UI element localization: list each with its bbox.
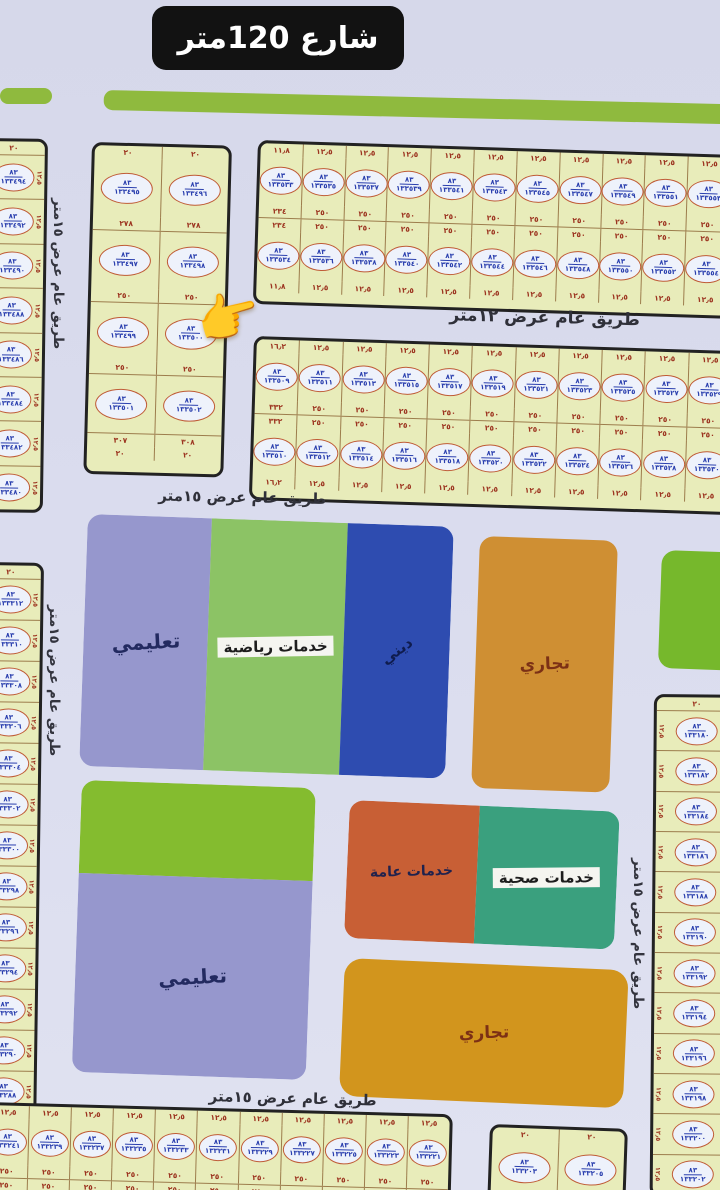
plot-number-label: ٨٣١٣٣١٨٠ bbox=[676, 717, 718, 745]
plot-cell: ٨٣١٣٣٥١٦ bbox=[382, 431, 427, 480]
plot-number-label: ٨٣١٣٣٥٥٠ bbox=[599, 252, 642, 281]
plot-cell: ٨٣١٣٣٥٤١ bbox=[430, 161, 474, 210]
plot-number-label: ٨٣١٣٣٥١٩ bbox=[472, 369, 515, 398]
plot-cell: ٨٣١٣٣١٨٠١٢٫٥ bbox=[656, 711, 720, 752]
dimension-label: ١٢٫٥ bbox=[25, 1044, 33, 1058]
plot-number-label: ٨٣١٣٣٥٤٠ bbox=[385, 245, 428, 274]
dimension-label: ١٦٫٢ bbox=[252, 475, 296, 489]
road-label-15m-vertical-left-top: طريق عام عرض ١٥متر bbox=[50, 198, 66, 349]
zone-religious-label: ديني bbox=[377, 633, 416, 668]
dimension-label: ١٢٫٥ bbox=[386, 343, 430, 357]
plot-number-label: ٨٣١٣٣٢٩٤ bbox=[0, 954, 27, 983]
dimension-label: ١٢٫٥ bbox=[657, 844, 665, 858]
plot-number-label: ٨٣١٣٣١٨٨ bbox=[674, 878, 716, 906]
dimension-label: ١٢٫٥ bbox=[427, 284, 470, 298]
block-number: ٨٣ bbox=[3, 257, 22, 266]
plot-number-label: ٨٣١٣٣٤٨٨ bbox=[0, 296, 33, 325]
plot-number-label: ٨٣١٣٣١٩٠ bbox=[674, 918, 716, 946]
dimension-label: ١٢٫٥ bbox=[240, 1112, 282, 1126]
plot-number: ١٣٣٥٢٢ bbox=[521, 460, 547, 469]
plot-number-label: ٨٣١٣٣١٨٤ bbox=[675, 798, 717, 826]
plot-number: ١٣٣٢٩٦ bbox=[0, 928, 19, 937]
block-number: ٨٣ bbox=[183, 253, 202, 263]
plot-number-label: ٨٣١٣٣٥١٣ bbox=[342, 365, 385, 394]
dimension-label: ٢٥٠ bbox=[686, 232, 720, 246]
plot-number-label: ٨٣١٣٣٥٥١ bbox=[644, 178, 687, 207]
plot-number: ١٣٣٥٥٤ bbox=[693, 269, 719, 278]
plot-cell: ٨٣١٣٣٥٢٠ bbox=[469, 434, 514, 483]
dimension-label: ١٢٫٥ bbox=[31, 593, 39, 607]
plot-number-label: ٨٣١٣٣٣١٠ bbox=[0, 626, 31, 655]
dimension-label: ٢٥٠ bbox=[643, 230, 686, 244]
plot-cell: ٨٣١٣٣٢٢٩ bbox=[239, 1125, 282, 1172]
plot-number: ١٣٣٢٣٧ bbox=[79, 1144, 105, 1153]
block-number: ٨٣ bbox=[684, 1085, 703, 1094]
plot-number: ١٣٣٢٩٤ bbox=[0, 969, 18, 978]
dimension-label: ١٢٫٥ bbox=[513, 287, 556, 301]
zone-sports-services-label: خدمات رياضية bbox=[217, 636, 334, 658]
plot-number: ١٣٣١٩٤ bbox=[681, 1014, 707, 1023]
dimension-label: ١٢٫٥ bbox=[555, 485, 599, 499]
dimension-label: ١٢٫٥ bbox=[602, 350, 646, 364]
zone-educational-lower: تعليمي bbox=[72, 780, 316, 1080]
subdivision-map: شارع 120متر ٢٠٨٣١٣٣٤٩٤١٢٫٥٨٣١٣٣٤٩٢١٢٫٥٨٣… bbox=[0, 0, 720, 1190]
plot-number: ١٣٣٤٨٢ bbox=[0, 444, 23, 453]
dimension-label: ٢٥٠ bbox=[196, 1184, 238, 1190]
dimension-label: ١٢٫٥ bbox=[26, 962, 34, 976]
dimension-label: ١١٫٨ bbox=[260, 143, 303, 157]
dimension-label: ١٢٫٥ bbox=[34, 259, 42, 273]
plot-cell: ٨٣١٣٣٣٠٠١٢٫٥ bbox=[0, 825, 37, 867]
plot-number-label: ٨٣١٣٣٣٠٠ bbox=[0, 831, 28, 860]
plot-number-label: ٨٣١٣٣٢٢٧ bbox=[283, 1135, 322, 1163]
dimension-label: ٢٥٠ bbox=[341, 403, 385, 417]
dimension-label: ١٢٫٥ bbox=[31, 481, 39, 495]
plot-cell: ٨٣١٣٣٥٥٤ bbox=[685, 244, 720, 293]
plot-number-label: ٨٣١٣٣٥١٥ bbox=[385, 366, 428, 395]
plot-number: ١٣٣٥٢٣ bbox=[566, 386, 592, 395]
block-number: ٨٣ bbox=[4, 168, 23, 177]
dimension-label: ١٢٫٥ bbox=[28, 839, 36, 853]
plot-number: ١٣٣٥٢٧ bbox=[653, 389, 679, 398]
plot-cell: ٨٣١٣٣٥٣٥ bbox=[302, 157, 346, 206]
road-label-15m-vertical-left-bottom: طريق عام عرض ١٥متر bbox=[46, 605, 62, 756]
zone-public-health-services: خدمات عامة خدمات صحية bbox=[344, 800, 620, 950]
plot-number-label: ٨٣١٣٣٢٩٦ bbox=[0, 913, 27, 942]
plot-number-label: ٨٣١٣٣٤٩٧ bbox=[99, 244, 152, 276]
dimension-label: ١٢٫٥ bbox=[598, 486, 642, 500]
plot-cell: ٨٣١٣٣٤٩٨ bbox=[159, 232, 227, 292]
plot-number-label: ٨٣١٣٣٥٢٩ bbox=[688, 376, 720, 405]
dimension-label: ٢٥٠ bbox=[557, 410, 601, 424]
plot-cell: ٨٣١٣٣٢٩٤١٢٫٥ bbox=[0, 948, 36, 990]
plot-number-label: ٨٣١٣٣٥٤٢ bbox=[428, 246, 471, 275]
plot-cell: ٨٣١٣٣٢٠٠١٢٫٥ bbox=[653, 1114, 720, 1155]
dimension-label: ١٢٫٥ bbox=[432, 148, 475, 162]
dimension-label: ١٢٫٥ bbox=[282, 1113, 324, 1127]
plot-number: ١٣٣٥١٠ bbox=[261, 452, 287, 461]
plot-number-label: ٨٣١٣٣٥٣٤ bbox=[257, 241, 300, 270]
plot-number: ١٣٣٥٤٤ bbox=[479, 262, 505, 271]
dimension-label: ١٢٫٥ bbox=[474, 150, 517, 164]
dimension-label: ١٢٫٥ bbox=[303, 144, 346, 158]
plot-cell: ٨٣١٣٣٥٣٣ bbox=[259, 156, 303, 205]
plot-number-label: ٨٣١٣٣٥٤٩ bbox=[602, 177, 645, 206]
dimension-label: ٢٥٠ bbox=[430, 209, 473, 223]
block-number: ٨٣ bbox=[0, 673, 19, 682]
dimension-label: ١٢٫٥ bbox=[654, 1127, 662, 1141]
plot-number: ١٣٣٣٠٠ bbox=[0, 846, 20, 855]
plot-row: ٨٣١٣٣٢٠٣٨٣١٣٣٢٠٥ bbox=[491, 1140, 625, 1190]
dimension-label: ٢٣٤ bbox=[259, 204, 302, 218]
dimension-label: ١٢٫٥ bbox=[655, 1046, 663, 1060]
plot-number: ١٣٣٥٤٣ bbox=[481, 187, 507, 196]
plot-cell: ٨٣١٣٣٥١٥ bbox=[385, 356, 430, 405]
plot-cell: ٨٣١٣٣٢٢٣ bbox=[365, 1128, 408, 1175]
plot-number: ١٣٣٤٨٨ bbox=[0, 310, 24, 319]
dimension-label: ١٢٫٥ bbox=[343, 342, 387, 356]
dimension-label: ٢٥٠ bbox=[470, 421, 514, 435]
plot-number-label: ٨٣١٣٣١٩٦ bbox=[673, 1039, 715, 1067]
dimension-label: ١٢٫٥ bbox=[29, 798, 37, 812]
plot-cell: ٨٣١٣٣٥١٩ bbox=[471, 359, 516, 408]
plot-number: ١٣٣٥١٢ bbox=[305, 453, 331, 462]
dimension-label: ١٢٫٥ bbox=[656, 965, 664, 979]
dimension-label: ١٢٫٥ bbox=[657, 764, 665, 778]
dimension-label: ١٢٫٥ bbox=[27, 880, 35, 894]
plot-number-label: ٨٣١٣٣٢٣٧ bbox=[72, 1130, 111, 1158]
plot-number: ١٣٣٥٣٤ bbox=[265, 256, 291, 265]
dimension-label: ١٢٫٥ bbox=[408, 1116, 449, 1130]
plot-number: ١٣٣٥١١ bbox=[307, 378, 333, 387]
dimension-label: ٢٥٠ bbox=[387, 222, 430, 236]
plot-number: ١٣٣٥٠٢ bbox=[176, 406, 202, 415]
plot-number-label: ٨٣١٣٣٤٩٩ bbox=[97, 316, 150, 348]
plot-number: ١٣٣٥١٤ bbox=[348, 454, 374, 463]
plot-cell: ٨٣١٣٣٢٣٧ bbox=[71, 1120, 114, 1167]
dimension-label: ٢٥٠ bbox=[70, 1180, 112, 1190]
dimension-label: ١٢٫٥ bbox=[382, 479, 426, 493]
dimension-label: ١٢٫٥ bbox=[684, 292, 720, 306]
dimension-label: ٢٥٠ bbox=[644, 412, 688, 426]
plot-cell: ٨٣١٣٣٤٩٢١٢٫٥ bbox=[0, 199, 44, 244]
dimension-label: ٢٥٠ bbox=[428, 405, 472, 419]
plot-number-label: ٨٣١٣٣٥٠١ bbox=[95, 388, 148, 420]
block-number: ٨٣ bbox=[0, 960, 15, 969]
plot-cell: ٨٣١٣٣٥٢٥ bbox=[601, 363, 646, 412]
plot-cell: ٨٣١٣٣٢٣٥ bbox=[113, 1121, 156, 1168]
plot-cell: ٨٣١٣٣١٨٤١٢٫٥ bbox=[656, 792, 720, 833]
plot-number-label: ٨٣١٣٣١٩٤ bbox=[673, 999, 715, 1027]
plot-number: ١٣٣٥١٨ bbox=[434, 457, 460, 466]
plot-cell: ٨٣١٣٣٤٨٦١٢٫٥ bbox=[0, 333, 42, 378]
plot-number: ١٣٣٥١٣ bbox=[350, 379, 376, 388]
plot-number: ١٣٣٥٢٩ bbox=[696, 390, 720, 399]
dimension-label: ١٢٫٥ bbox=[114, 1108, 156, 1122]
dimension-label: ١٢٫٥ bbox=[346, 146, 389, 160]
dimension-label: ١٢٫٥ bbox=[468, 482, 512, 496]
plot-block-north-lower: ١٦٫٢١٢٫٥١٢٫٥١٢٫٥١٢٫٥١٢٫٥١٢٫٥١٢٫٥١٢٫٥١٢٫٥… bbox=[249, 336, 720, 515]
dimension-label: ٢٥٠ bbox=[515, 212, 558, 226]
dimension-label: ١٢٫٥ bbox=[641, 291, 684, 305]
dimension-label: ١٢٫٥ bbox=[603, 154, 646, 168]
plot-cell: ٨٣١٣٣٢٠٢١٢٫٥ bbox=[653, 1155, 720, 1190]
block-number: ٨٣ bbox=[118, 179, 137, 189]
plot-cell: ٨٣١٣٣٥١٢ bbox=[296, 428, 341, 477]
block-number: ٨٣ bbox=[40, 1134, 59, 1144]
dimension-label: ٢٣٤ bbox=[258, 218, 301, 232]
block-number: ٨٣ bbox=[685, 964, 704, 973]
plot-number: ١٣٣٤٩٦ bbox=[181, 190, 207, 199]
plot-number-label: ٨٣١٣٣٥٣٧ bbox=[345, 169, 388, 198]
block-number: ٨٣ bbox=[1, 390, 20, 399]
dimension-label: ٢٠ bbox=[0, 565, 41, 580]
plot-number-label: ٨٣١٣٣٥١٠ bbox=[253, 437, 296, 466]
dimension-label: ٢٠ bbox=[87, 446, 155, 461]
plot-number: ١٣٣٥٠١ bbox=[108, 404, 134, 413]
dimension-label: ٢٥٠ bbox=[344, 221, 387, 235]
dimension-label: ٢٥٠ bbox=[0, 1178, 28, 1190]
plot-number-label: ٨٣١٣٣٢٣٩ bbox=[30, 1129, 69, 1157]
road-label-15m-vertical-right: طريق عام عرض ١٥متر bbox=[630, 858, 646, 1009]
plot-number-label: ٨٣١٣٣١٩٨ bbox=[672, 1080, 714, 1108]
block-number: ٨٣ bbox=[116, 251, 135, 261]
zone-health-services: خدمات صحية bbox=[473, 806, 619, 950]
dimension-label: ٢٥٠ bbox=[112, 1181, 154, 1190]
plot-cell: ٨٣١٣٣٢٩٨١٢٫٥ bbox=[0, 866, 37, 908]
zone-sports-services: خدمات رياضية bbox=[204, 518, 348, 775]
block-number: ٨٣ bbox=[0, 919, 15, 928]
block-number: ٨٣ bbox=[0, 878, 16, 887]
plot-number-label: ٨٣١٣٣٢٢٩ bbox=[241, 1134, 280, 1162]
plot-number: ١٣٣٢٣٥ bbox=[121, 1145, 147, 1154]
plot-cell: ٨٣١٣٣٥٤٣ bbox=[473, 163, 517, 212]
plot-cell: ٨٣١٣٣٤٩٥ bbox=[93, 158, 162, 218]
block-number: ٨٣ bbox=[2, 301, 21, 310]
dimension-label: ١٢٫٥ bbox=[641, 487, 685, 501]
dimension-label: ١٢٫٥ bbox=[658, 724, 666, 738]
plot-cell: ٨٣١٣٣٣٠٢١٢٫٥ bbox=[0, 784, 38, 826]
dimension-label: ١٢٫٥ bbox=[560, 153, 603, 167]
dimension-label: ١٢٫٥ bbox=[389, 147, 432, 161]
plot-number: ١٣٣٣٠٨ bbox=[0, 682, 22, 691]
plot-cell: ٨٣١٣٣٥٤٧ bbox=[559, 165, 603, 214]
dimension-label: ٢٥٠ bbox=[28, 1165, 70, 1179]
plot-cell: ٨٣١٣٣٥٢١ bbox=[514, 360, 559, 409]
zone-educational-1: تعليمي bbox=[79, 514, 212, 770]
plot-cell: ٨٣١٣٣٢٢١ bbox=[407, 1129, 449, 1176]
plot-number-label: ٨٣١٣٣١٨٦ bbox=[675, 838, 717, 866]
plot-cell: ٨٣١٣٣٥٤٤ bbox=[471, 238, 515, 287]
plot-cell: ٨٣١٣٣٤٨٤١٢٫٥ bbox=[0, 377, 42, 422]
plot-cell: ٨٣١٣٣٥٥٢ bbox=[642, 243, 686, 292]
plot-cell: ٨٣١٣٣٢٣١ bbox=[197, 1124, 240, 1171]
block-number: ٨٣ bbox=[2, 346, 21, 355]
plot-number: ١٣٣١٨٨ bbox=[682, 893, 708, 902]
plot-number: ١٣٣٥٥١ bbox=[653, 193, 679, 202]
zone-educational-sports-religious: تعليمي خدمات رياضية ديني bbox=[79, 514, 454, 779]
dimension-label: ٢٥٠ bbox=[644, 216, 687, 230]
plot-number-label: ٨٣١٣٣٢٩٢ bbox=[0, 995, 26, 1024]
block-number: ٨٣ bbox=[0, 1083, 13, 1092]
block-number: ٨٣ bbox=[0, 1133, 17, 1143]
dimension-label: ١٢٫٥ bbox=[300, 340, 344, 354]
plot-number-label: ٨٣١٣٣٢٩٠ bbox=[0, 1036, 25, 1065]
dimension-label: ٢٥٠ bbox=[112, 1167, 154, 1181]
plot-cell: ٨٣١٣٣٢٩٢١٢٫٥ bbox=[0, 989, 35, 1031]
block-number: ٨٣ bbox=[335, 1141, 354, 1151]
zone-public-services-label: خدمات عامة bbox=[370, 863, 453, 881]
plot-cell: ٨٣١٣٣٥٠٩ bbox=[255, 352, 300, 401]
plot-cell: ٨٣١٣٣٥٢٢ bbox=[512, 435, 557, 484]
plot-number-label: ٨٣١٣٣٢٢٥ bbox=[325, 1136, 364, 1164]
plot-number-label: ٨٣١٣٣٤٩٤ bbox=[0, 163, 35, 192]
block-number: ٨٣ bbox=[684, 1125, 703, 1134]
plot-number-label: ٨٣١٣٣٢٠٥ bbox=[564, 1153, 617, 1186]
plot-cell: ٨٣١٣٣٣٠٤١٢٫٥ bbox=[0, 743, 38, 785]
block-number: ٨٣ bbox=[180, 397, 199, 407]
plot-number-label: ٨٣١٣٣٤٨٢ bbox=[0, 429, 31, 458]
dimension-label: ١٢٫٥ bbox=[0, 1105, 30, 1119]
plot-number: ١٣٣٣٠٤ bbox=[0, 764, 21, 773]
plot-cell: ٨٣١٣٣١٩٨١٢٫٥ bbox=[653, 1074, 720, 1115]
plot-number-label: ٨٣١٣٣٣٠٢ bbox=[0, 790, 29, 819]
plot-cell: ٨٣١٣٣٤٩٠١٢٫٥ bbox=[0, 244, 44, 289]
zone-green-buffer bbox=[658, 550, 720, 671]
plot-number: ١٣٣٥٤٥ bbox=[524, 189, 550, 198]
dimension-label: ٢٥٠ bbox=[558, 213, 601, 227]
plot-number: ١٣٣٥٤٦ bbox=[522, 264, 548, 273]
dimension-label: ٢٥٠ bbox=[154, 1182, 196, 1190]
plot-number: ١٣٣١٩٨ bbox=[681, 1094, 707, 1103]
plot-cell: ٨٣١٣٣٥٣٠ bbox=[685, 441, 720, 490]
zone-commercial-upper: تجاري bbox=[471, 536, 618, 793]
plot-number: ١٣٣٥٢٨ bbox=[651, 464, 677, 473]
dimension-label: ١٢٫٥ bbox=[425, 480, 469, 494]
zone-health-services-label: خدمات صحية bbox=[493, 867, 600, 888]
block-number: ٨٣ bbox=[1, 632, 20, 641]
plot-number: ١٣٣٥٥٢ bbox=[650, 268, 676, 277]
plot-cell: ٨٣١٣٣٥٢٧ bbox=[644, 364, 689, 413]
plot-cell: ٨٣١٣٣٥٢٤ bbox=[555, 437, 600, 486]
plot-number: ١٣٣٢٣٣ bbox=[163, 1146, 189, 1155]
street-banner: شارع 120متر bbox=[152, 6, 404, 70]
plot-cell: ٨٣١٣٣٥٢٩ bbox=[687, 366, 720, 415]
plot-number-label: ٨٣١٣٣٣٠٨ bbox=[0, 667, 31, 696]
plot-cell: ٨٣١٣٣٤٨٠١٢٫٥ bbox=[0, 466, 40, 510]
plot-cell: ٨٣١٣٣٢٠٥ bbox=[557, 1142, 624, 1190]
plot-number: ١٣٣٢٠٥ bbox=[578, 1169, 604, 1178]
plot-number-label: ٨٣١٣٣٣١٢ bbox=[0, 585, 32, 614]
dimension-label: ١٢٫٥ bbox=[32, 437, 40, 451]
plot-number: ١٣٣٥١٦ bbox=[391, 456, 417, 465]
dimension-label: ١٢٫٥ bbox=[31, 634, 39, 648]
plot-number-label: ٨٣١٣٣٣٠٦ bbox=[0, 708, 30, 737]
dimension-label: ٢٥٠ bbox=[384, 404, 428, 418]
plot-number-label: ٨٣١٣٣٥٢٢ bbox=[513, 445, 556, 474]
block-number: ٨٣ bbox=[0, 435, 19, 444]
plot-number-label: ٨٣١٣٣٥٢٤ bbox=[556, 447, 599, 476]
block-number: ٨٣ bbox=[251, 1139, 270, 1149]
plot-block-south: ١٢٫٥١٢٫٥١٢٫٥١٢٫٥١٢٫٥١٢٫٥١٢٫٥١٢٫٥١٢٫٥١٢٫٥… bbox=[0, 1102, 453, 1190]
plot-cell: ٨٣١٣٣٥٢٦ bbox=[599, 438, 644, 487]
block-number: ٨٣ bbox=[0, 837, 16, 846]
zone-public-services: خدمات عامة bbox=[344, 800, 479, 944]
plot-number: ١٣٣٣١٠ bbox=[0, 641, 23, 650]
plot-number: ١٣٣٥٣٥ bbox=[310, 182, 336, 191]
plot-cell: ٨٣١٣٣١٩٦١٢٫٥ bbox=[654, 1034, 720, 1075]
plot-number-label: ٨٣١٣٣٢٠٠ bbox=[672, 1120, 714, 1148]
plot-cell: ٨٣١٣٣٢٠٣ bbox=[491, 1140, 559, 1190]
plot-number: ١٣٣٤٩٥ bbox=[114, 188, 140, 197]
plot-number: ١٣٣٢٠٠ bbox=[680, 1135, 706, 1144]
plot-cell: ٨٣١٣٣٥٠٢ bbox=[155, 376, 223, 436]
plot-number: ١٣٣٤٩٤ bbox=[1, 177, 27, 186]
plot-number: ١٣٣٤٩٨ bbox=[180, 262, 206, 271]
plot-cell: ٨٣١٣٣٥٣٩ bbox=[387, 160, 431, 209]
plot-number: ١٣٣١٩٦ bbox=[681, 1054, 707, 1063]
plot-number: ١٣٣١٩٢ bbox=[682, 973, 708, 982]
dimension-label: ١٢٫٥ bbox=[654, 1167, 662, 1181]
plot-number: ١٣٣٢٩٢ bbox=[0, 1010, 18, 1019]
plot-number-label: ٨٣١٣٣٥٤٦ bbox=[514, 249, 557, 278]
dimension-row: ٢٠٢٠ bbox=[87, 446, 221, 463]
plot-number-label: ٨٣١٣٣٥١٤ bbox=[340, 440, 383, 469]
plot-number: ١٣٣٥٠٩ bbox=[264, 377, 290, 386]
plot-number: ١٣٣٥٢٤ bbox=[564, 461, 590, 470]
dimension-label: ١٢٫٥ bbox=[198, 1111, 240, 1125]
plot-number: ١٣٣٢٠٢ bbox=[680, 1175, 706, 1184]
dimension-label: ٢٥٠ bbox=[558, 227, 601, 241]
plot-cell: ٨٣١٣٣٣١٢١٢٫٥ bbox=[0, 579, 41, 621]
plot-cell: ٨٣١٣٣٥٤٩ bbox=[601, 167, 645, 216]
dimension-label: ٢٥٠ bbox=[280, 1186, 322, 1190]
plot-cell: ٨٣١٣٣١٨٦١٢٫٥ bbox=[655, 832, 720, 873]
plot-number-label: ٨٣١٣٣٥٣٠ bbox=[686, 451, 720, 480]
zone-commercial-lower-label: تجاري bbox=[458, 1022, 509, 1043]
plot-number-label: ٨٣١٣٣٢٩٨ bbox=[0, 872, 28, 901]
plot-number-label: ٨٣١٣٣٥٤١ bbox=[430, 171, 473, 200]
plot-number-label: ٨٣١٣٣٥٢٧ bbox=[645, 374, 688, 403]
dimension-label: ١٢٫٥ bbox=[30, 1106, 72, 1120]
dimension-label: ١٢٫٥ bbox=[33, 348, 41, 362]
plot-cell: ٨٣١٣٣٣١٠١٢٫٥ bbox=[0, 620, 40, 662]
dimension-label: ١٢٫٥ bbox=[299, 280, 342, 294]
dimension-label: ١٢٫٥ bbox=[657, 804, 665, 818]
plot-number: ١٣٣٢٢٣ bbox=[373, 1152, 399, 1161]
dimension-label: ٢٥٠ bbox=[600, 425, 644, 439]
plot-cell: ٨٣١٣٣٥٥٠ bbox=[599, 242, 643, 291]
block-number: ٨٣ bbox=[686, 843, 705, 852]
dimension-label: ٢٥٠ bbox=[601, 215, 644, 229]
plot-cell: ٨٣١٣٣١٨٨١٢٫٥ bbox=[655, 872, 720, 913]
block-number: ٨٣ bbox=[1, 591, 20, 600]
dimension-label: ٢٥٠ bbox=[429, 223, 472, 237]
dimension-label: ٢٥٠ bbox=[514, 408, 558, 422]
plot-number: ١٣٣٥٣٨ bbox=[351, 258, 377, 267]
plot-number-label: ٨٣١٣٣٤٩٦ bbox=[168, 174, 221, 206]
plot-number: ١٣٣٥٢٥ bbox=[610, 388, 636, 397]
block-number: ٨٣ bbox=[377, 1143, 396, 1153]
plot-cell: ٨٣١٣٣٥٢٨ bbox=[642, 439, 687, 488]
dimension-label: ٢٥٠ bbox=[384, 418, 428, 432]
dimension-label: ٢٥٠ bbox=[643, 426, 687, 440]
plot-number-label: ٨٣١٣٣٤٩٠ bbox=[0, 252, 33, 281]
plot-number-label: ٨٣١٣٣٤٩٥ bbox=[101, 172, 154, 204]
dimension-label: ٢٥٠ bbox=[515, 226, 558, 240]
plot-block-south-small: ٢٠٢٠٨٣١٣٣٢٠٣٨٣١٣٣٢٠٥ bbox=[487, 1124, 628, 1190]
dimension-label: ٢٥٠ bbox=[600, 229, 643, 243]
